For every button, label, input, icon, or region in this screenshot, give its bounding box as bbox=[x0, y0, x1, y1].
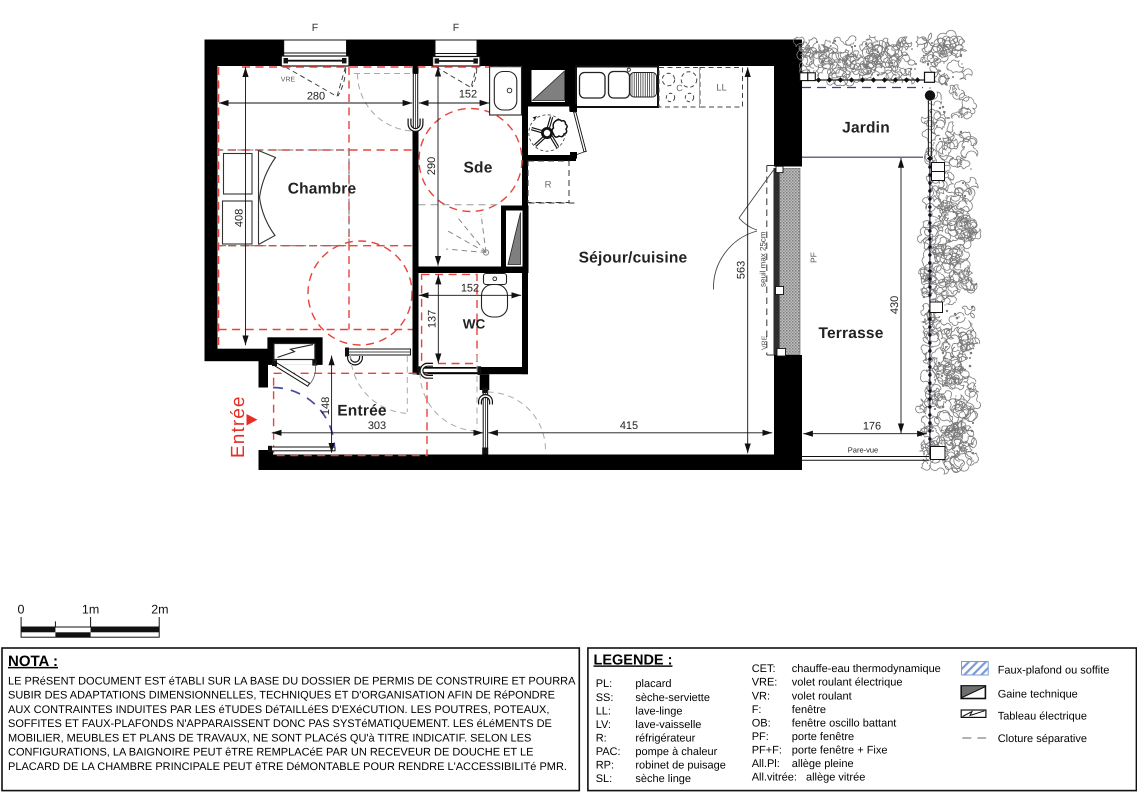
svg-text:WC: WC bbox=[463, 317, 486, 332]
svg-text:CET:: CET: bbox=[752, 663, 776, 675]
svg-text:porte fenêtre + Fixe: porte fenêtre + Fixe bbox=[792, 745, 888, 757]
svg-text:PF: PF bbox=[809, 252, 819, 263]
svg-text:Chambre: Chambre bbox=[288, 181, 357, 198]
svg-text:563: 563 bbox=[736, 261, 748, 279]
svg-text:MOBILIER, MEUBLES ET PLANS DE: MOBILIER, MEUBLES ET PLANS DE TRAVAUX, N… bbox=[8, 732, 531, 744]
svg-text:Sde: Sde bbox=[463, 160, 492, 177]
svg-text:Jardin: Jardin bbox=[842, 120, 890, 137]
svg-text:LL: LL bbox=[716, 83, 727, 94]
svg-text:303: 303 bbox=[368, 420, 386, 432]
svg-text:allège vitrée: allège vitrée bbox=[806, 772, 865, 784]
svg-text:415: 415 bbox=[620, 420, 638, 432]
svg-text:pompe à chaleur: pompe à chaleur bbox=[635, 746, 717, 758]
svg-text:allège pleine: allège pleine bbox=[792, 758, 854, 770]
svg-text:PLACARD DE LA CHAMBRE PRINCIPA: PLACARD DE LA CHAMBRE PRINCIPALE PEUT êT… bbox=[8, 761, 567, 773]
svg-text:chauffe-eau thermodynamique: chauffe-eau thermodynamique bbox=[792, 663, 941, 675]
svg-text:VR:: VR: bbox=[752, 690, 770, 702]
svg-text:SS:: SS: bbox=[596, 692, 614, 704]
svg-text:fenêtre oscillo battant: fenêtre oscillo battant bbox=[792, 717, 897, 729]
svg-text:NOTA :: NOTA : bbox=[8, 653, 58, 670]
svg-text:LEGENDE :: LEGENDE : bbox=[594, 652, 673, 668]
svg-text:SL:: SL: bbox=[596, 773, 613, 785]
svg-text:sèche linge: sèche linge bbox=[635, 773, 691, 785]
svg-text:placard: placard bbox=[635, 678, 671, 690]
svg-text:RP:: RP: bbox=[596, 759, 614, 771]
svg-text:280: 280 bbox=[307, 91, 325, 103]
svg-text:LV:: LV: bbox=[596, 719, 611, 731]
svg-text:R: R bbox=[545, 180, 552, 191]
svg-text:porte fenêtre: porte fenêtre bbox=[792, 731, 854, 743]
svg-text:CONFIGURATIONS, LA BAIGNOIRE P: CONFIGURATIONS, LA BAIGNOIRE PEUT êTRE R… bbox=[8, 747, 533, 759]
svg-text:seuil max 25cm: seuil max 25cm bbox=[759, 231, 768, 287]
svg-text:volet roulant électrique: volet roulant électrique bbox=[792, 677, 903, 689]
svg-text:148: 148 bbox=[320, 397, 332, 415]
svg-text:Séjour/cuisine: Séjour/cuisine bbox=[579, 250, 688, 267]
svg-text:430: 430 bbox=[889, 296, 901, 314]
svg-text:2m: 2m bbox=[151, 603, 168, 617]
svg-text:Terrasse: Terrasse bbox=[818, 325, 883, 342]
svg-text:SOFFITES ET FAUX-PLAFONDS N'AP: SOFFITES ET FAUX-PLAFONDS N'APPARAISSENT… bbox=[8, 718, 552, 730]
svg-text:176: 176 bbox=[863, 421, 881, 433]
svg-text:Entrée: Entrée bbox=[228, 395, 249, 458]
svg-text:F:: F: bbox=[752, 704, 762, 716]
svg-text:152: 152 bbox=[461, 282, 479, 294]
svg-text:C: C bbox=[676, 83, 683, 93]
svg-text:SUBIR DES ADAPTATIONS DIMENSIO: SUBIR DES ADAPTATIONS DIMENSIONNELLES, T… bbox=[8, 690, 555, 702]
svg-text:1m: 1m bbox=[82, 603, 99, 617]
svg-text:152: 152 bbox=[459, 89, 477, 101]
svg-text:lave-linge: lave-linge bbox=[635, 705, 682, 717]
svg-text:0: 0 bbox=[18, 603, 25, 617]
svg-text:PF:: PF: bbox=[752, 731, 769, 743]
svg-text:volet roulant: volet roulant bbox=[792, 690, 852, 702]
svg-text:F: F bbox=[312, 22, 318, 34]
svg-text:Gaine technique: Gaine technique bbox=[998, 689, 1078, 701]
svg-text:lave-vaisselle: lave-vaisselle bbox=[635, 719, 701, 731]
svg-text:All.Pl:: All.Pl: bbox=[752, 758, 780, 770]
svg-text:Cloture séparative: Cloture séparative bbox=[998, 733, 1087, 745]
svg-text:290: 290 bbox=[426, 157, 438, 175]
svg-text:Entrée: Entrée bbox=[337, 403, 387, 420]
svg-text:PL:: PL: bbox=[596, 678, 613, 690]
svg-text:fenêtre: fenêtre bbox=[792, 704, 826, 716]
svg-text:VRE: VRE bbox=[762, 335, 769, 350]
svg-text:All.vitrée:: All.vitrée: bbox=[752, 772, 797, 784]
svg-text:Pare-vue: Pare-vue bbox=[848, 446, 878, 455]
svg-text:LL:: LL: bbox=[596, 705, 611, 717]
svg-text:PAC:: PAC: bbox=[596, 746, 621, 758]
svg-text:robinet de puisage: robinet de puisage bbox=[635, 759, 726, 771]
svg-text:408: 408 bbox=[234, 209, 246, 227]
svg-text:sèche-serviette: sèche-serviette bbox=[635, 692, 710, 704]
svg-text:137: 137 bbox=[426, 310, 438, 328]
svg-text:Tableau électrique: Tableau électrique bbox=[998, 711, 1087, 723]
svg-text:AUX CONTRAINTES INDUITES PAR L: AUX CONTRAINTES INDUITES PAR LES éTUDES … bbox=[8, 704, 549, 716]
svg-text:Faux-plafond ou soffite: Faux-plafond ou soffite bbox=[998, 665, 1110, 677]
svg-text:réfrigérateur: réfrigérateur bbox=[635, 732, 695, 744]
svg-text:LE PRéSENT DOCUMENT EST éTABLI: LE PRéSENT DOCUMENT EST éTABLI SUR LA BA… bbox=[8, 675, 576, 687]
svg-text:F: F bbox=[453, 22, 459, 34]
svg-text:PF+F:: PF+F: bbox=[752, 745, 782, 757]
svg-text:R:: R: bbox=[596, 732, 607, 744]
svg-text:VRE: VRE bbox=[281, 77, 296, 84]
svg-text:OB:: OB: bbox=[752, 717, 771, 729]
svg-text:VRE:: VRE: bbox=[752, 677, 778, 689]
